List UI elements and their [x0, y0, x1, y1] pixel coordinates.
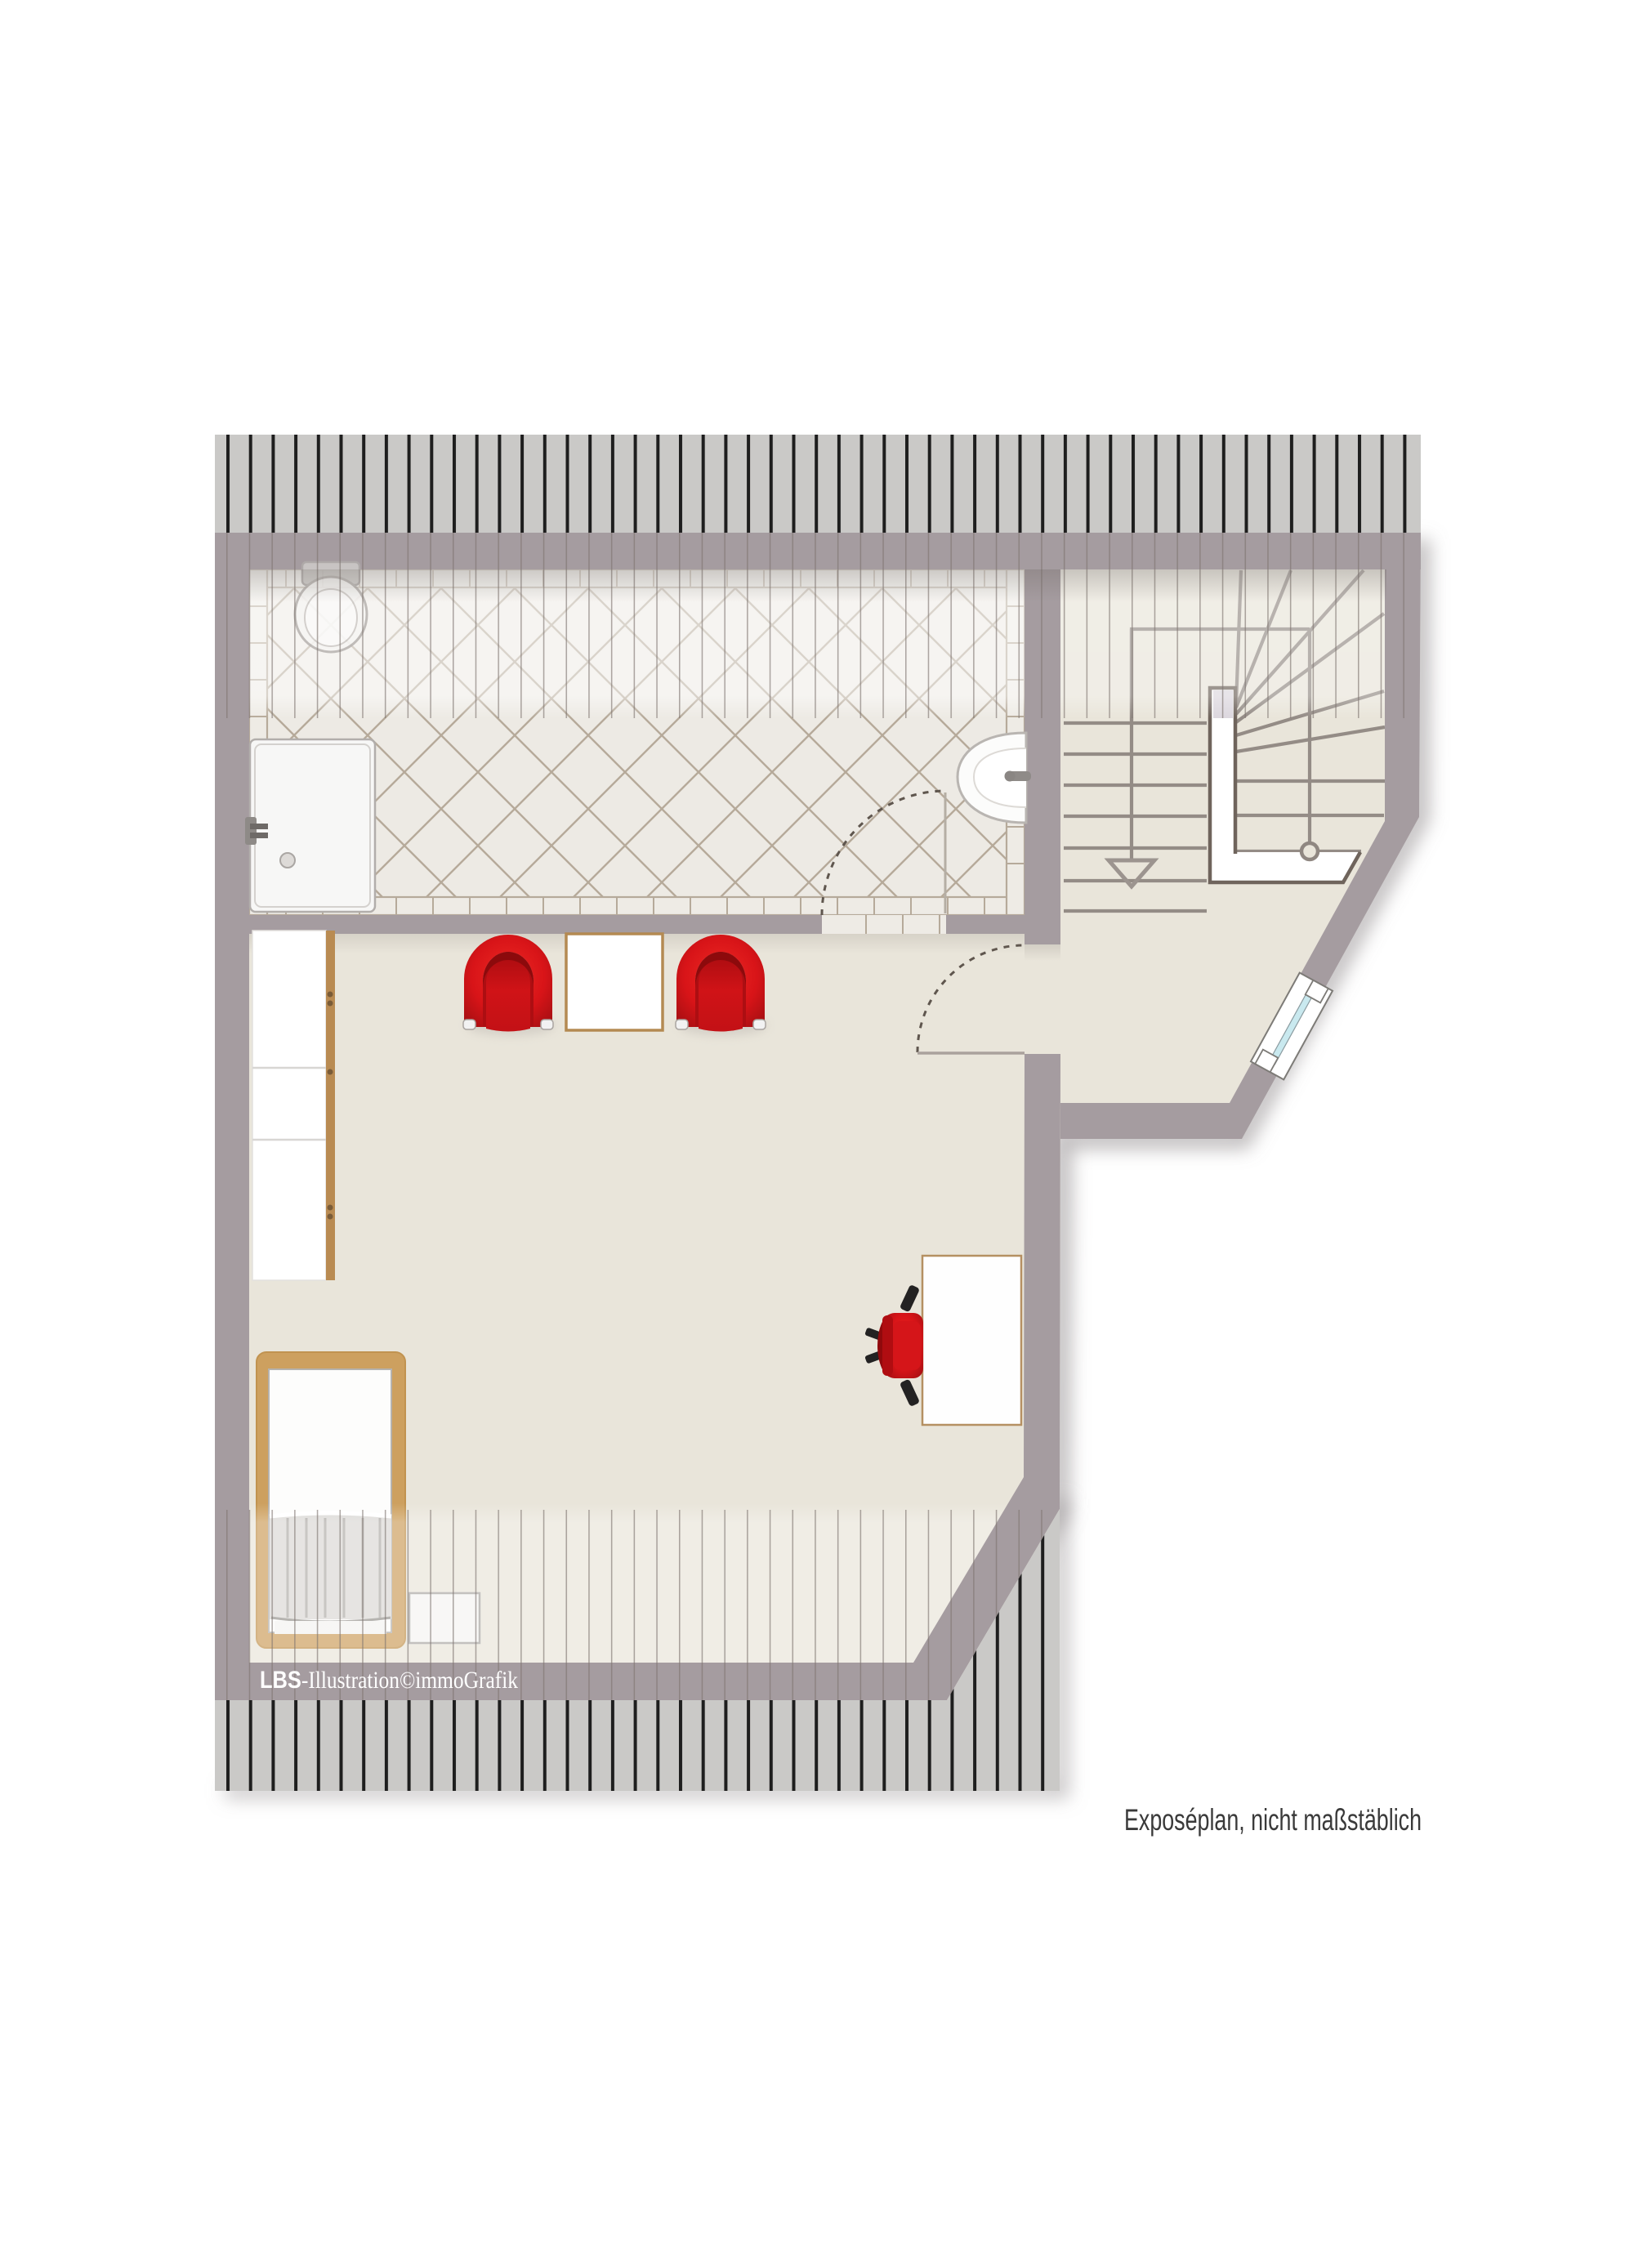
svg-text:LBS-Illustration©immoGrafik: LBS-Illustration©immoGrafik: [260, 1667, 518, 1694]
svg-text:Exposéplan, nicht maßstäblich: Exposéplan, nicht maßstäblich: [1124, 1803, 1422, 1837]
